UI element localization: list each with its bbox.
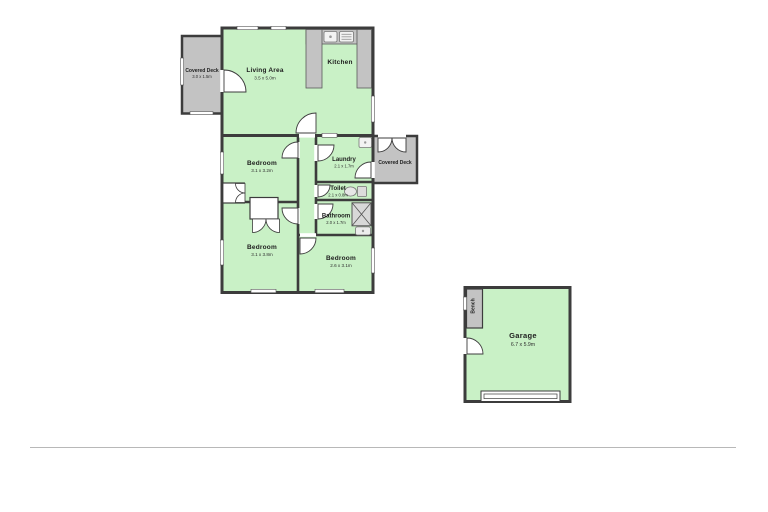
toilet-dims: 2.1 x 0.8m	[328, 193, 348, 198]
laundry-appliance-icon	[359, 138, 372, 148]
bedroom-top-dims: 3.1 x 3.2m	[251, 168, 273, 173]
kitchen-label: Kitchen	[327, 59, 352, 66]
laundry-dims: 2.1 x 1.7m	[334, 164, 354, 169]
garage-dims: 6.7 x 5.9m	[511, 342, 535, 348]
living-area-label: Living Area	[246, 67, 284, 74]
shower-icon	[352, 203, 371, 226]
bench-label: Bench	[471, 298, 477, 313]
garage-label: Garage	[509, 331, 537, 340]
covered-deck-right-label: Covered Deck	[378, 160, 412, 166]
covered-deck-left-dims: 3.0 x 1.5m	[192, 74, 212, 79]
kitchen-sink-icon	[324, 32, 337, 43]
stove-icon	[340, 32, 354, 43]
bedroom-right-label: Bedroom	[326, 255, 356, 262]
garage-person-door-gap	[463, 338, 467, 354]
laundry-label: Laundry	[332, 157, 356, 163]
floorplan-page: Covered Deck 3.0 x 1.5m Living Area 3.5 …	[0, 0, 768, 512]
bedroom-right-dims: 2.6 x 3.1m	[330, 263, 352, 268]
footer: ARIZTO 34 Syme Crescent, Kawerau Disclai…	[0, 447, 768, 512]
bathroom-label: Bathroom	[322, 214, 350, 220]
living-area-dims: 3.5 x 5.0m	[254, 76, 276, 81]
bedroom-top-label: Bedroom	[247, 160, 277, 167]
garage-window	[463, 297, 466, 310]
toilet-label: Toilet	[330, 186, 346, 192]
bedroom-left-dims: 3.1 x 3.8m	[251, 252, 273, 257]
floorplan-drawing: Covered Deck 3.0 x 1.5m Living Area 3.5 …	[0, 0, 768, 447]
bedroom-left-label: Bedroom	[247, 244, 277, 251]
bathroom-dims: 2.0 x 1.7m	[326, 220, 346, 225]
closet-left	[223, 183, 245, 203]
garage-roller-door	[481, 391, 560, 402]
vanity-icon	[356, 227, 371, 235]
